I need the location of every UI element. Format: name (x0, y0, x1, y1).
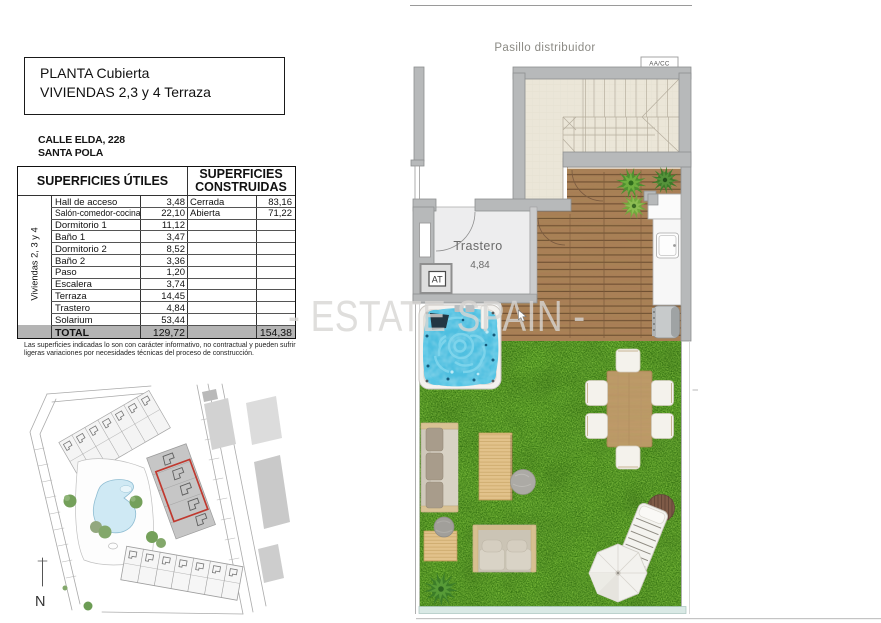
svg-text:4,84: 4,84 (470, 260, 490, 271)
svg-text:AA/CC: AA/CC (649, 60, 670, 67)
svg-text:AT: AT (432, 275, 443, 285)
svg-text:N: N (35, 594, 45, 610)
svg-text:Trastero: Trastero (453, 239, 502, 253)
svg-text:Pasillo distribuidor: Pasillo distribuidor (494, 42, 595, 54)
